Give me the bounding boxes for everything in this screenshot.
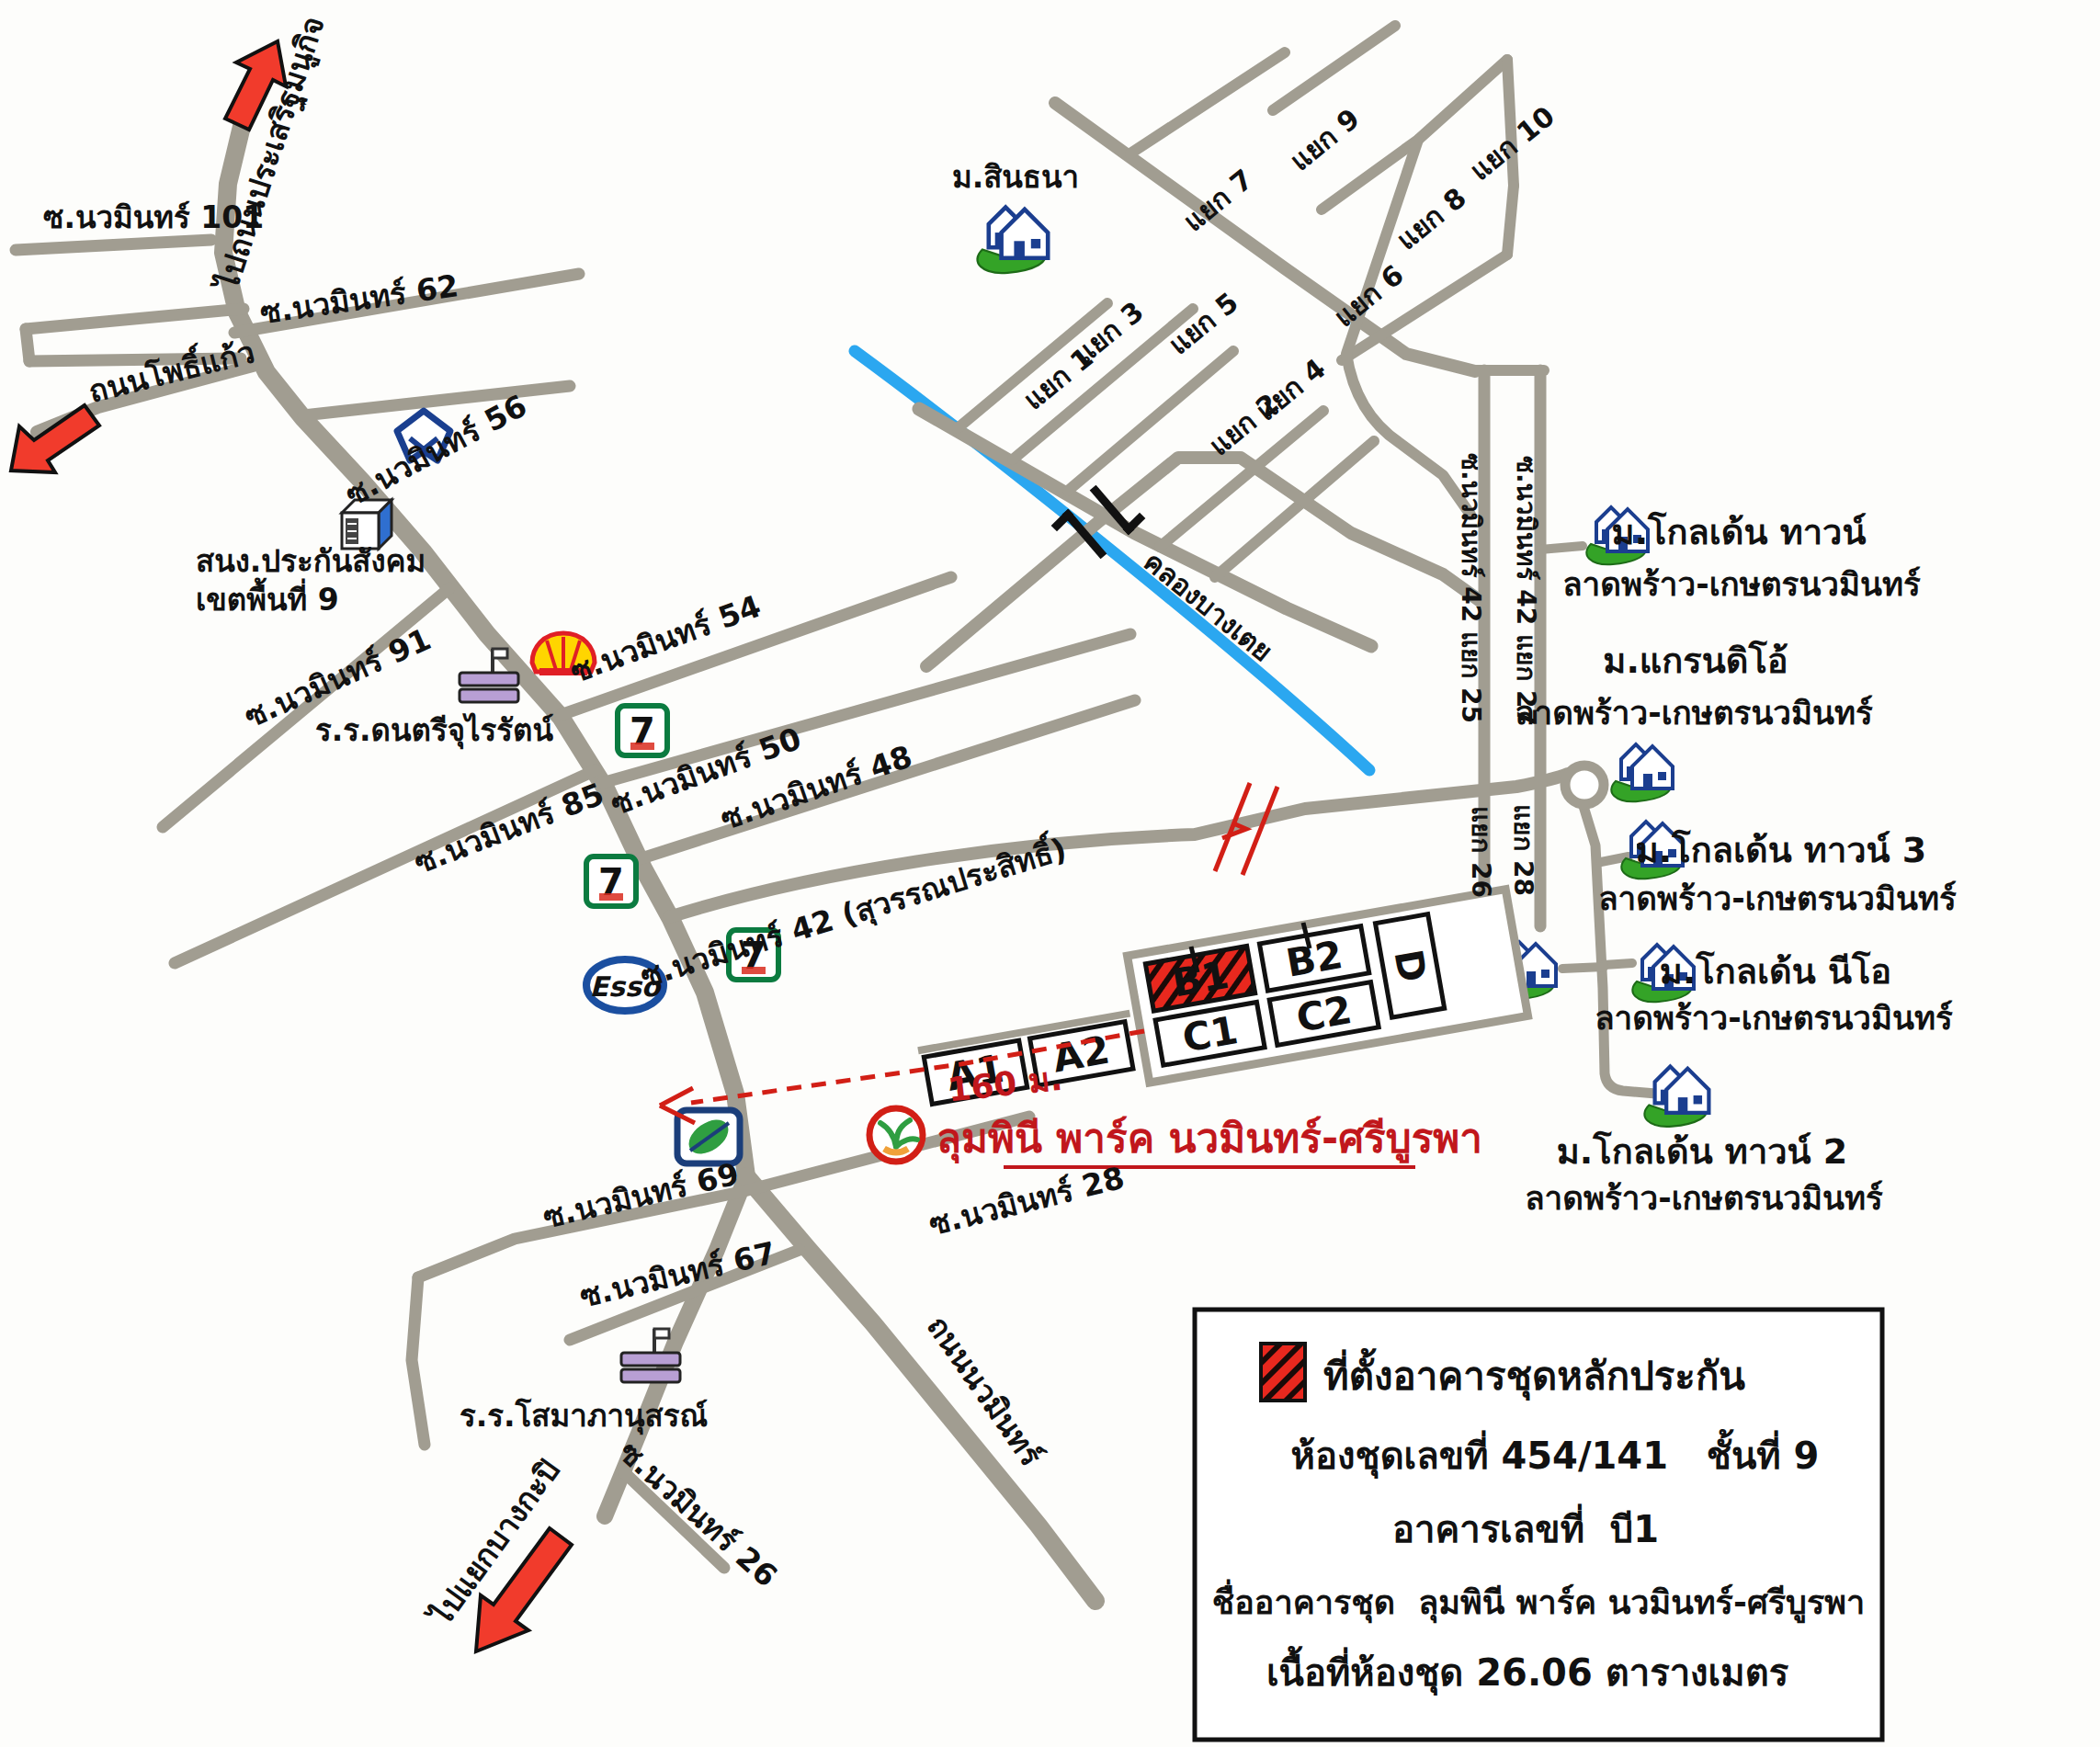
label-golden-neo-sub: ลาดพร้าว-เกษตรนวมินทร์	[1595, 1000, 1953, 1037]
svg-text:B2: B2	[1283, 932, 1346, 986]
label-yaek-26: แยก 26	[1466, 806, 1496, 898]
label-golden-town3-sub: ลาดพร้าว-เกษตรนวมินทร์	[1598, 880, 1957, 917]
label-yaek-9: แยก 9	[1284, 102, 1366, 177]
label-golden-town2: ม.โกลเด้น ทาวน์ 2	[1557, 1130, 1847, 1172]
road-nawamin-southeast	[746, 1176, 1095, 1601]
label-grandio-sub: ลาดพร้าว-เกษตรนวมินทร์	[1515, 695, 1873, 732]
label-grandio: ม.แกรนดิโอ้	[1603, 640, 1788, 681]
road-golden-town-branch	[1540, 546, 1583, 550]
label-soi42-yaek25: ซ.นวมินทร์ 42 แยก 25	[1456, 453, 1486, 723]
label-yaek-28: แยก 28	[1508, 804, 1538, 896]
label-soi-85: ซ.นวมินทร์ 85	[409, 776, 608, 880]
label-soi-26: ซ.นวมินทร์ 26	[612, 1434, 785, 1594]
svg-text:C2: C2	[1293, 987, 1356, 1041]
label-golden-town3: ม.โกลเด้น ทาวน์ 3	[1636, 829, 1926, 870]
road-yaek-5	[1068, 351, 1233, 491]
label-soi42-yaek27: ซ.นวมินทร์ 42 แยก 27	[1511, 456, 1541, 726]
label-somapa-school: ร.ร.โสมาภานุสรณ์	[460, 1398, 708, 1435]
road-loop-left	[26, 329, 29, 361]
road-yaek-9	[1273, 26, 1395, 110]
roundabout	[1565, 766, 1604, 804]
seven-eleven-icon	[586, 856, 636, 906]
road-soi-56	[303, 386, 570, 415]
label-golden-neo: ม.โกลเด้น นีโอ	[1660, 950, 1891, 992]
label-phokaeo: ถนนโพธิ์แก้ว	[84, 329, 258, 409]
label-churairat-school: ร.ร.ดนตรีจุไรรัตน์	[315, 712, 553, 750]
legend-line4: ชื่ออาคารชุด ลุมพินี พาร์ค นวมินทร์-ศรีบ…	[1212, 1579, 1865, 1624]
kasikorn-bank-icon	[869, 1108, 923, 1162]
grandio-village-icon	[1611, 744, 1673, 801]
label-sso-1: สนง.ประกันสังคม	[196, 543, 426, 579]
svg-text:C1: C1	[1179, 1007, 1242, 1061]
road-soi-69-stub	[412, 1277, 425, 1445]
seven-eleven-icon	[618, 706, 667, 755]
label-sso-2: เขตพื้นที่ 9	[196, 577, 339, 618]
road-soi-101	[16, 240, 211, 250]
label-soi-62: ซ.นวมินทร์ 62	[258, 267, 461, 331]
label-golden-town2-sub: ลาดพร้าว-เกษตรนวมินทร์	[1525, 1180, 1883, 1217]
condo-name-label: ลุมพินี พาร์ค นวมินทร์-ศรีบูรพา	[936, 1115, 1482, 1164]
location-map: 7 คลองบางเตย	[0, 0, 2100, 1747]
legend-line2: ห้องชุดเลขที่ 454/141 ชั้นที่ 9	[1291, 1429, 1820, 1480]
legend-line5: เนื้อที่ห้องชุด 26.06 ตารางเมตร	[1266, 1646, 1789, 1696]
label-sinthana: ม.สินธนา	[952, 159, 1079, 195]
label-soi-69: ซ.นวมินทร์ 69	[539, 1155, 742, 1235]
road-soi-85	[175, 770, 596, 963]
legend-box: ที่ตั้งอาคารชุดหลักประกัน ห้องชุดเลขที่ …	[1195, 1310, 1882, 1740]
legend-line3: อาคารเลขที่ บี1	[1392, 1503, 1659, 1550]
road-golden-neo-branch-left	[1562, 967, 1604, 969]
arrow-phokaeo	[11, 405, 99, 472]
golden-town2-village-icon	[1644, 1067, 1708, 1127]
road-box-bottom	[1507, 186, 1514, 255]
label-soi-101: ซ.นวมินทร์ 101	[43, 199, 264, 235]
label-soi-28: ซ.นวมินทร์ 28	[925, 1160, 1128, 1242]
road-loop-top	[26, 309, 244, 329]
legend-swatch	[1261, 1344, 1305, 1401]
label-golden-town-sub: ลาดพร้าว-เกษตรนวมินทร์	[1562, 566, 1921, 603]
map-page: 7 คลองบางเตย	[0, 0, 2100, 1747]
road-yaek-7	[1130, 52, 1285, 153]
road-golden-neo-branch-right	[1604, 963, 1632, 965]
svg-text:B1: B1	[1169, 952, 1232, 1006]
sinthana-village-icon	[977, 208, 1048, 274]
legend-line1: ที่ตั้งอาคารชุดหลักประกัน	[1323, 1347, 1745, 1401]
label-golden-town: ม.โกลเด้น ทาวน์	[1612, 511, 1867, 552]
